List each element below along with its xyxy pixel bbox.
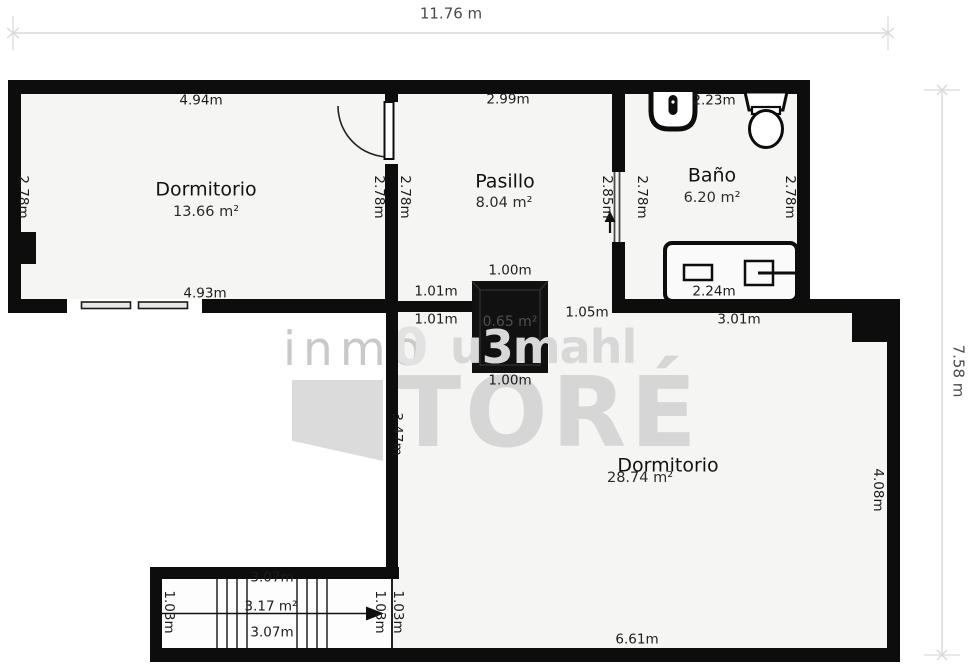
dim-dormitorio1-left: 2.78m bbox=[15, 175, 29, 218]
toilet-icon bbox=[745, 92, 787, 148]
room-area-bano: 6.20 m² bbox=[684, 191, 741, 206]
dim-shaft-wall-bottom: 1.01m bbox=[414, 313, 457, 327]
room-area-pasillo: 8.04 m² bbox=[476, 196, 533, 211]
dim-stairs-right-inner: 1.03m bbox=[372, 590, 386, 633]
overall-height-label: 7.58 m bbox=[951, 345, 966, 398]
room-area-dormitorio1: 13.66 m² bbox=[173, 205, 239, 220]
floorplan-canvas: inmo 0 TORÉ bbox=[0, 0, 976, 666]
dim-stairs-top: 3.07m bbox=[250, 571, 293, 585]
overall-width-label: 11.76 m bbox=[420, 7, 482, 22]
dim-bano-right: 2.78m bbox=[782, 175, 796, 218]
sliding-door-icon bbox=[615, 172, 620, 242]
dim-stairs-right-outer: 1.03m bbox=[390, 590, 404, 633]
room-name-bano: Baño bbox=[688, 167, 736, 186]
dim-bano-tub: 2.24m bbox=[692, 285, 735, 299]
dim-dormitorio2-right: 4.08m bbox=[870, 468, 884, 511]
room-area-shaft: 0.65 m² bbox=[483, 315, 538, 329]
dim-pasillo-door: 2.85m bbox=[599, 175, 613, 218]
dim-pasillo-left: 2.78m bbox=[397, 175, 411, 218]
dim-stairs-left: 1.03m bbox=[161, 590, 175, 633]
dim-bano-left: 2.78m bbox=[634, 175, 648, 218]
dim-shaft-bottom: 1.00m bbox=[488, 374, 531, 388]
dim-bano-top: 2.23m bbox=[692, 94, 735, 108]
sink-icon bbox=[651, 92, 695, 129]
room-area-stairs: 3.17 m² bbox=[245, 600, 298, 614]
dim-shaft-top: 1.00m bbox=[488, 264, 531, 278]
dim-dormitorio1-bottom: 4.93m bbox=[183, 287, 226, 301]
room-area-dormitorio2: 28.74 m² bbox=[607, 471, 673, 486]
window-icon bbox=[82, 302, 188, 309]
watermark-text-u3mahl: u3mahl bbox=[450, 324, 636, 370]
dim-dormitorio2-bottom: 6.61m bbox=[615, 633, 658, 647]
bathtub-icon bbox=[665, 243, 808, 301]
room-name-dormitorio1: Dormitorio bbox=[155, 181, 256, 200]
dim-dormitorio1-top: 4.94m bbox=[179, 94, 222, 108]
dim-stairs-bottom: 3.07m bbox=[250, 626, 293, 640]
dim-shaft-wall-top: 1.01m bbox=[414, 285, 457, 299]
dim-bano-bottom: 3.01m bbox=[717, 313, 760, 327]
room-name-pasillo: Pasillo bbox=[475, 173, 535, 192]
door-icon bbox=[338, 102, 394, 159]
dim-dormitorio1-right: 2.78m bbox=[371, 175, 385, 218]
dim-dormitorio2-opening: 1.05m bbox=[565, 306, 608, 320]
dim-pasillo-top: 2.99m bbox=[486, 93, 529, 107]
dim-dormitorio2-wall-left: 3.47m bbox=[389, 412, 403, 455]
